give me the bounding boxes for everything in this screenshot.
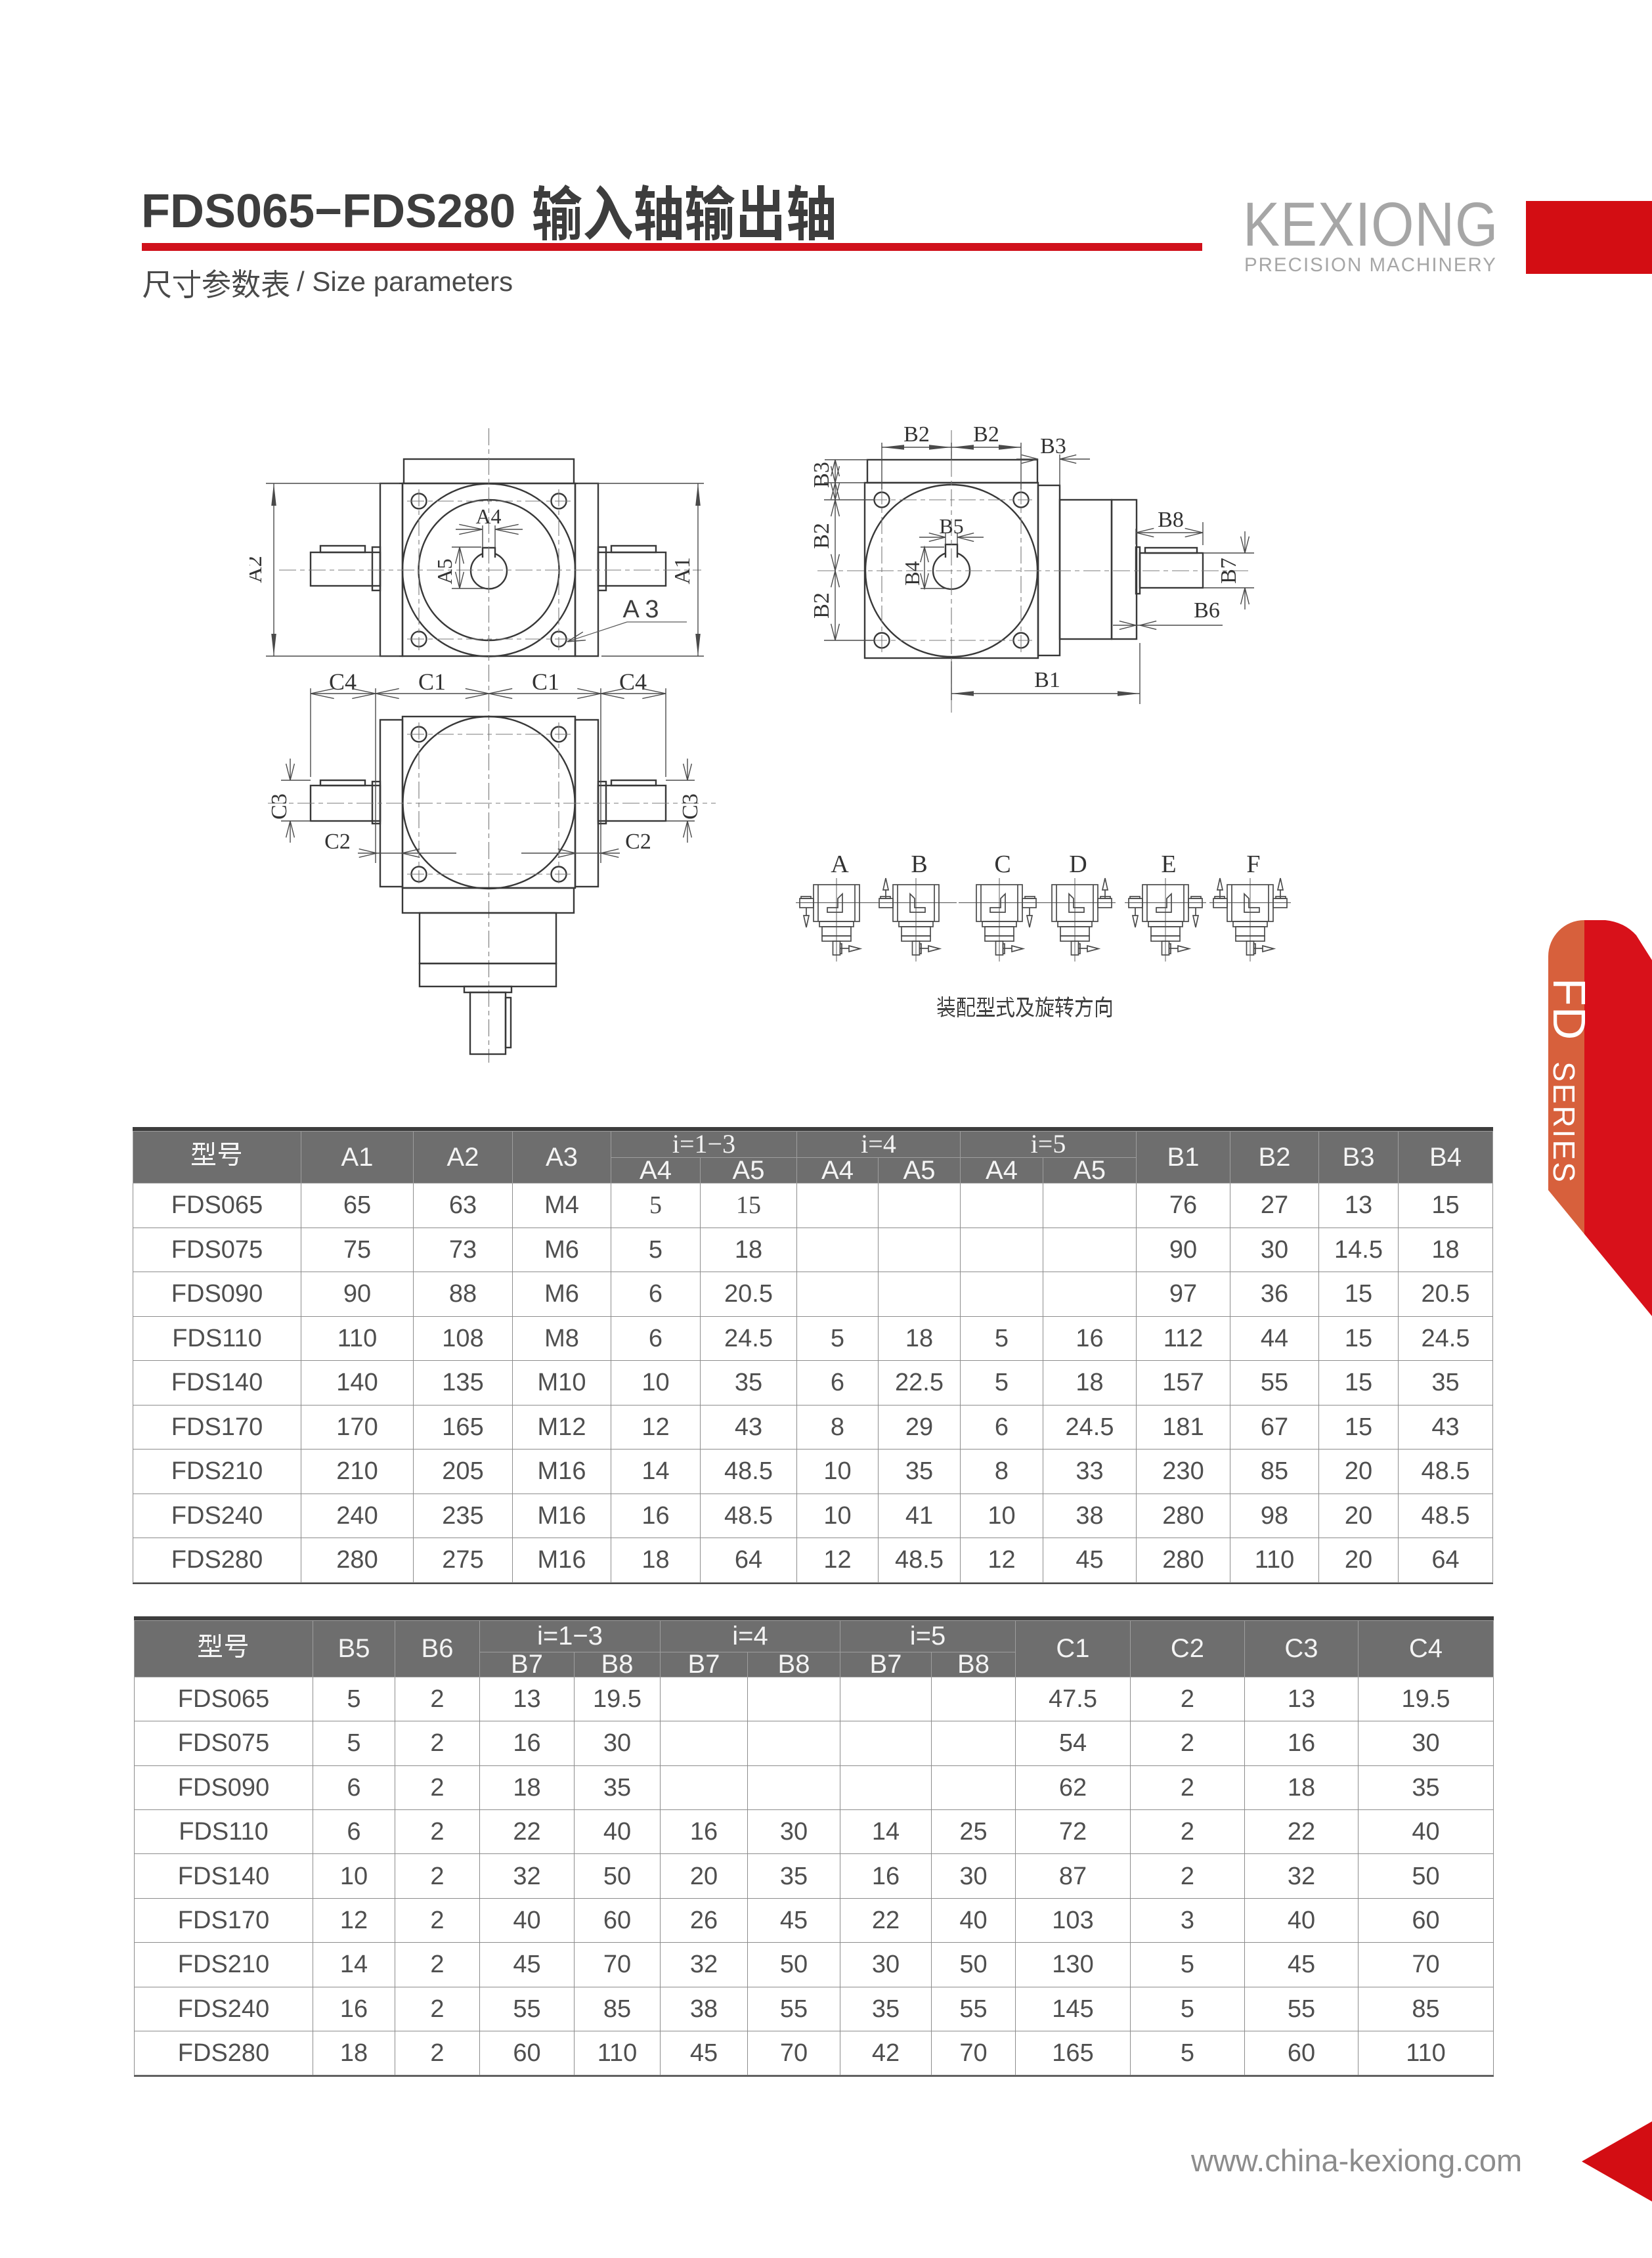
svg-text:B1: B1: [1034, 668, 1060, 692]
svg-text:D: D: [1069, 851, 1087, 878]
svg-text:A5: A5: [433, 558, 456, 584]
svg-text:B2: B2: [810, 592, 834, 619]
svg-text:A2: A2: [250, 556, 267, 583]
svg-text:C4: C4: [619, 669, 647, 695]
svg-text:C: C: [994, 851, 1011, 878]
svg-text:B: B: [911, 851, 927, 878]
svg-text:B8: B8: [1158, 508, 1184, 532]
svg-text:C4: C4: [329, 669, 357, 695]
svg-text:F: F: [1246, 851, 1260, 878]
svg-text:B2: B2: [810, 523, 834, 549]
svg-text:A4: A4: [475, 504, 501, 528]
svg-text:C1: C1: [418, 669, 446, 695]
svg-text:B2: B2: [973, 422, 999, 447]
svg-text:A1: A1: [670, 557, 695, 585]
svg-text:B5: B5: [939, 514, 963, 538]
svg-text:C2: C2: [625, 830, 651, 854]
svg-text:E: E: [1161, 851, 1176, 878]
svg-text:B3: B3: [1040, 434, 1066, 458]
svg-text:C1: C1: [532, 669, 559, 695]
svg-text:A: A: [831, 851, 849, 878]
svg-text:B6: B6: [1194, 598, 1220, 623]
svg-text:C3: C3: [678, 793, 703, 820]
svg-text:C3: C3: [267, 793, 292, 820]
svg-text:A 3: A 3: [623, 596, 659, 623]
svg-text:C2: C2: [324, 830, 351, 854]
svg-text:B2: B2: [903, 422, 930, 447]
svg-text:B7: B7: [1217, 558, 1241, 584]
svg-text:B3: B3: [810, 462, 834, 488]
